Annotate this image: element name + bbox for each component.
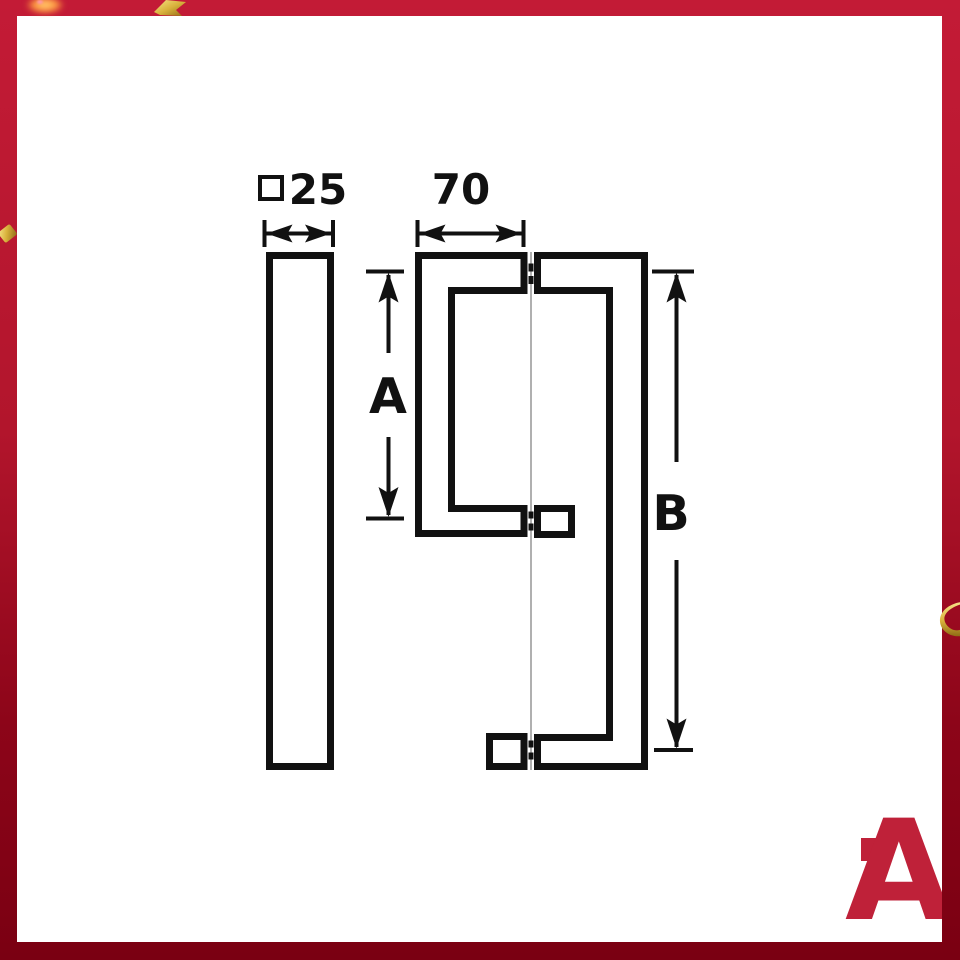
diagram-card: A xyxy=(17,16,942,942)
confetti-gold-curl-icon xyxy=(938,602,960,642)
confetti-orange-glow xyxy=(20,0,70,17)
confetti-gold-ribbon-icon xyxy=(150,0,194,18)
confetti-pink-dot xyxy=(37,0,43,4)
page: { "frame": { "border_gradient_top": "#c3… xyxy=(0,0,960,960)
confetti-gold-piece-icon xyxy=(0,224,17,243)
logo-letter: A xyxy=(845,802,942,941)
